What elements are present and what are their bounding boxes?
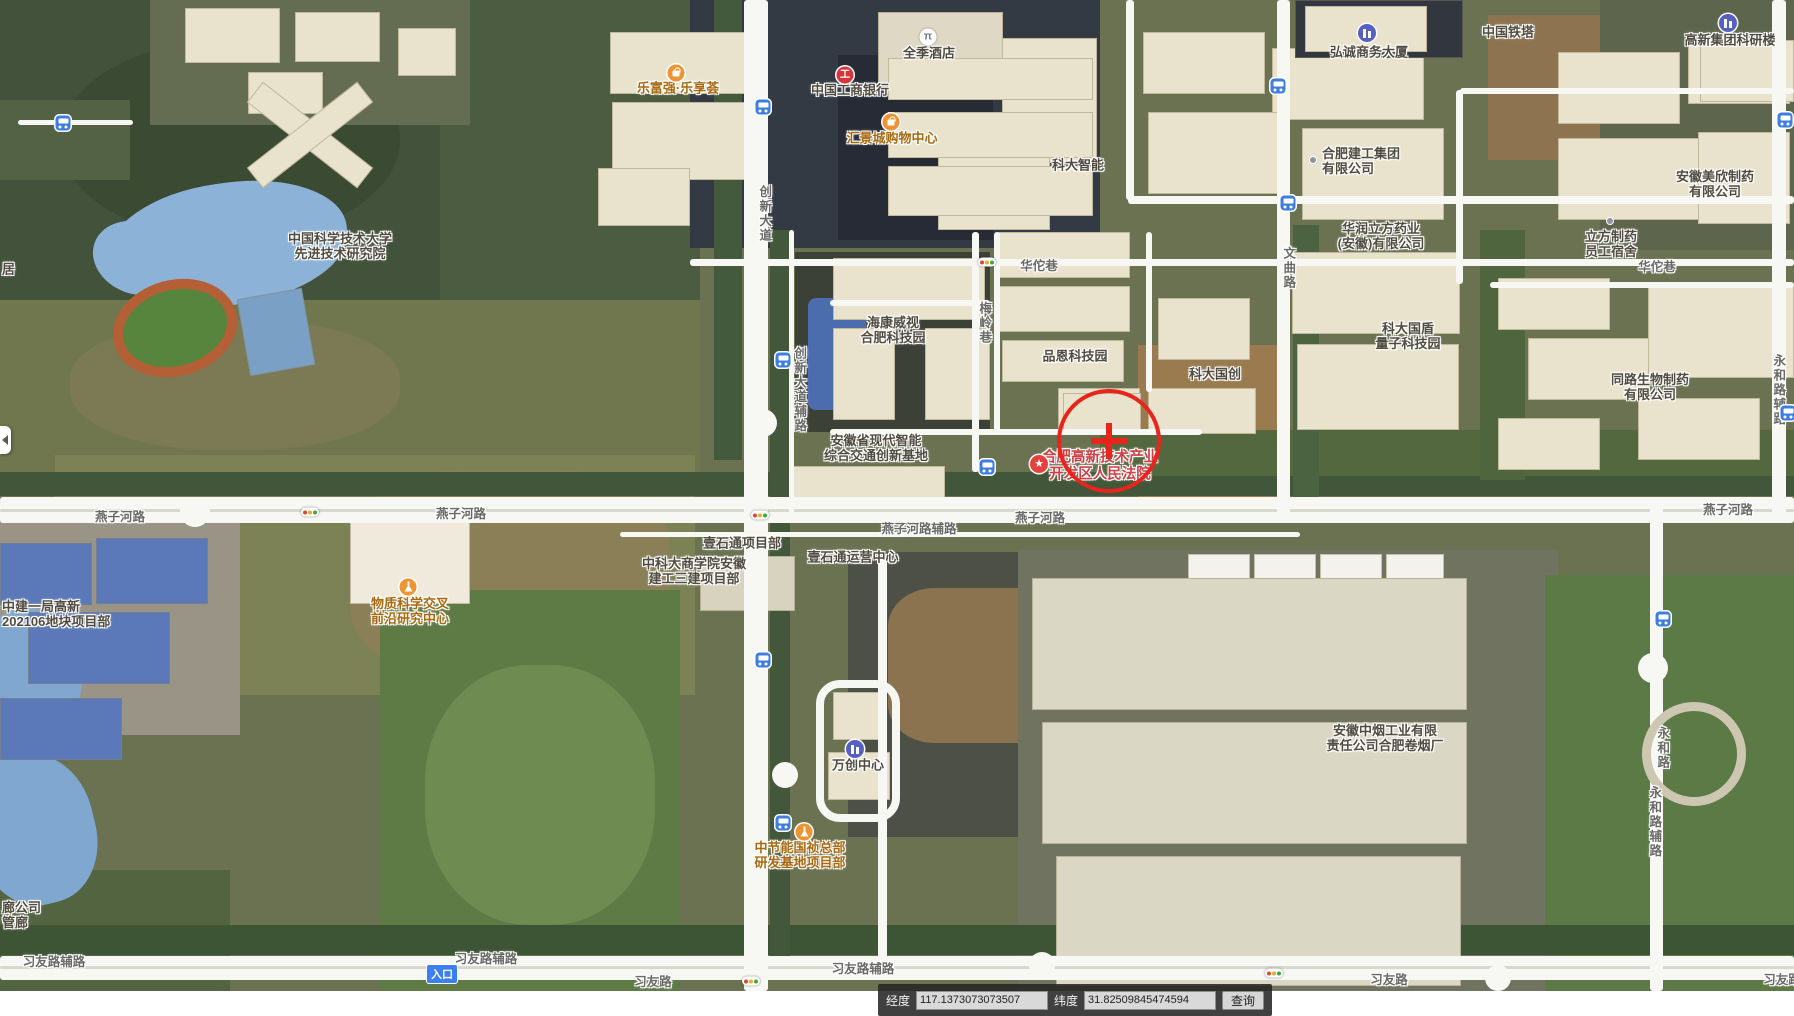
terrain-patch [714,0,742,460]
poi-label[interactable]: 高新集团科研楼 [1684,34,1775,49]
lab-icon[interactable] [796,824,813,841]
building [998,232,1130,278]
road-label: 习友路 [1763,973,1794,987]
building [1254,554,1316,604]
building [612,102,754,180]
building [1498,278,1610,330]
road-junction [749,409,777,437]
building [96,538,208,604]
road-junction [180,497,210,527]
map-road [0,966,1794,969]
poi-label[interactable]: 弘诚商务大厦 [1330,46,1408,61]
road-label: 华佗巷 [1020,259,1058,273]
terrain-patch [0,925,1794,955]
terrain-patch [808,298,866,410]
poi-label[interactable]: 廊公司 管廊 [2,901,41,931]
poi-label[interactable]: 海康威视 合肥科技园 [860,316,925,346]
building [248,72,323,114]
bus-stop-icon[interactable] [1781,406,1794,421]
traffic-light-icon [742,977,760,986]
road-junction [1638,653,1668,683]
building [1320,554,1382,604]
building [793,466,945,502]
building [247,82,373,189]
map-road [690,259,1794,266]
poi-dot-icon [1607,218,1613,224]
lab-icon[interactable] [400,579,417,596]
building [1148,112,1280,194]
building [833,258,985,320]
poi-label[interactable]: 壹石通运营中心 [807,551,898,566]
poi-label[interactable]: 中国工商银行 [811,84,889,99]
terrain-patch [440,0,700,330]
bus-stop-icon[interactable] [56,116,71,131]
terrain-patch [70,320,400,450]
building [888,58,1093,100]
terrain-patch [0,472,1794,496]
building [888,166,1093,216]
building [1498,418,1600,470]
poi-label[interactable]: 中科大商学院安徽 建工三建项目部 [642,557,746,587]
terrain-patch [82,209,191,307]
terrain-patch [1293,225,1319,515]
building [598,168,690,226]
road-label: 习友路辅路 [832,962,895,976]
terrain-patch [380,590,680,991]
terrain-patch [1545,575,1794,991]
building [1688,42,1790,104]
building [1002,38,1097,163]
terrain-patch [0,0,660,320]
poi-label[interactable]: 科大国创 [1189,368,1241,383]
road-label: 永和路 [1656,726,1669,770]
road-junction [1029,952,1055,978]
traffic-light-icon [1265,969,1283,978]
chevron-left-icon [2,435,8,445]
road-label: 习友路 [634,975,672,989]
poi-dot-icon [1310,157,1316,163]
road-label: 燕子河路 [436,507,486,521]
shopping-icon[interactable] [668,65,685,82]
poi-label[interactable]: 科大国盾 量子科技园 [1375,322,1440,352]
poi-label[interactable]: 中国铁塔 [1482,26,1534,41]
bus-stop-icon[interactable] [776,816,791,831]
terrain-patch [1018,550,1558,991]
terrain-patch [1480,230,1525,480]
bus-stop-icon[interactable] [776,353,791,368]
map-road [972,232,979,472]
building [1558,52,1680,124]
map-road [1126,0,1134,200]
poi-label[interactable]: 全季酒店 [903,47,955,62]
building-icon[interactable] [1719,14,1737,32]
map-road [1456,90,1463,284]
building [1297,344,1459,430]
poi-label[interactable]: 中建一局高新 202106地块项目部 [2,600,110,630]
building [1158,298,1250,360]
poi-label[interactable]: 壹石通项目部 [703,537,781,552]
poi-label[interactable]: 合肥建工集团 有限公司 [1322,147,1400,177]
road-label: 燕子河路 [95,510,145,524]
hotel-icon[interactable]: π [920,29,937,46]
satellite-map[interactable]: 中国科学技术大学 先进技术研究院中国工商银行全季酒店弘诚商务大厦中国铁塔高新集团… [0,0,1794,991]
terrain-patch [888,588,1073,743]
road-label: 习友路辅路 [455,952,518,966]
building [0,543,92,605]
building [1143,32,1265,94]
terrain-patch [0,743,111,918]
map-road [0,509,1794,512]
query-button[interactable]: 查询 [1222,991,1264,1010]
poi-label[interactable]: 乐富强·乐享荟 [637,82,719,97]
poi-label[interactable]: 安徽美欣制药 有限公司 [1676,170,1754,200]
map-road [1490,282,1794,288]
road-junction [1485,965,1511,991]
map-road [1146,232,1152,392]
building [1638,398,1760,460]
bank-icon[interactable]: 工 [837,67,854,84]
terrain-patch [0,300,700,480]
bus-stop-icon[interactable] [1281,196,1296,211]
map-road [18,120,133,125]
building [1700,40,1794,102]
building [295,12,380,62]
road-label: 文曲路 [1282,246,1295,290]
latitude-label: 纬度 [1054,992,1078,1009]
building [398,28,456,76]
map-road [1772,0,1786,520]
selection-marker-cross [1106,423,1112,459]
road-label: 燕子河路辅路 [881,522,956,536]
longitude-label: 经度 [886,992,910,1009]
map-road [0,497,1794,523]
stadium-track [102,265,249,390]
building-icon[interactable] [846,740,864,758]
building [998,286,1130,332]
building [1032,578,1467,710]
poi-label[interactable]: 居 [2,263,15,278]
road-label: 永和路辅路 [1648,786,1661,859]
terrain-patch [55,455,695,695]
road-label: 习友路 [1370,973,1408,987]
terrain-patch [1100,430,1794,476]
terrain-patch [350,470,670,680]
coordinate-statusbar: 经度 纬度 查询 [878,984,1272,1016]
poi-label[interactable]: 中节能国祯总部 研发基地项目部 [754,841,845,871]
building [0,698,122,760]
road-label: 梅岭巷 [978,301,991,345]
poi-label[interactable]: 品恩科技园 [1042,350,1107,365]
shopping-icon[interactable] [883,114,900,131]
building [833,692,885,740]
building [237,288,316,376]
bus-stop-icon[interactable] [756,100,771,115]
traffic-light-icon [978,258,996,267]
bus-stop-icon[interactable] [1271,79,1286,94]
poi-label[interactable]: 华润立方药业 (安徽)有限公司 [1338,222,1425,252]
road-label: 创新大道 [758,185,771,243]
building [1056,856,1461,986]
panel-collapse-button[interactable] [0,426,11,454]
building [1188,554,1250,604]
building [185,8,280,63]
road-label: 习友路辅路 [23,955,86,969]
terrain-patch [848,552,1183,837]
building [938,148,1050,230]
bus-stop-icon[interactable] [1656,612,1671,627]
terrain-patch [60,40,400,240]
terrain-patch [0,100,130,180]
road-label: 创新大道辅路 [793,347,806,434]
building [1386,554,1444,604]
bus-stop-icon[interactable] [980,460,995,475]
building [1148,388,1256,434]
map-road [0,956,1794,980]
road-junction [772,762,798,788]
map-road [1460,88,1794,94]
latitude-input[interactable] [1084,991,1216,1010]
traffic-light-icon [751,511,769,520]
star-poi-icon[interactable]: ★ [1030,455,1048,473]
entrance-badge[interactable]: 入口 [426,964,458,984]
poi-label[interactable]: 安徽省现代智能 综合交通创新基地 [824,434,928,464]
poi-label[interactable]: 万创中心 [832,759,884,774]
poi-label[interactable]: 立方制药 员工宿舍 [1585,230,1637,260]
road-label: 燕子河路 [1703,503,1753,517]
poi-label[interactable]: 同路生物制药 有限公司 [1611,373,1689,403]
longitude-input[interactable] [916,991,1048,1010]
terrain-patch [150,0,470,125]
poi-label[interactable]: 中国科学技术大学 先进技术研究院 [288,232,392,262]
bus-stop-icon[interactable] [1778,113,1793,128]
bus-stop-icon[interactable] [756,653,771,668]
road-label: 燕子河路 [1015,511,1065,525]
terrain-patch [425,665,655,925]
poi-label[interactable]: 安徽中烟工业有限 责任公司合肥卷烟厂 [1326,724,1443,754]
map-road [830,300,990,306]
traffic-light-icon [301,508,319,517]
poi-label[interactable]: 科大智能 [1052,159,1104,174]
poi-label[interactable]: 汇景城购物中心 [846,132,937,147]
poi-label[interactable]: 物质科学交叉 前沿研究中心 [371,597,449,627]
road-label: 华佗巷 [1638,260,1676,274]
building-icon[interactable] [1358,24,1376,42]
building [247,82,373,189]
terrain-patch [0,0,1794,991]
